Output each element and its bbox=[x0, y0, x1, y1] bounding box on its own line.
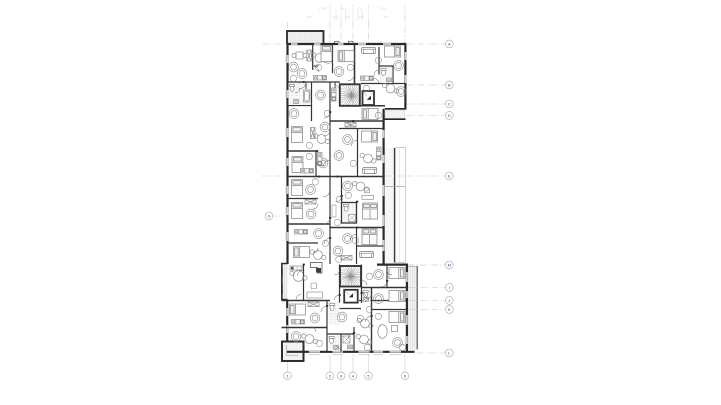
svg-text:1 705: 1 705 bbox=[318, 7, 326, 11]
svg-text:J: J bbox=[448, 298, 450, 303]
svg-text:675: 675 bbox=[356, 7, 361, 11]
svg-text:1 120: 1 120 bbox=[378, 7, 386, 11]
svg-text:G: G bbox=[267, 213, 270, 218]
svg-text:410: 410 bbox=[383, 15, 388, 19]
svg-text:I: I bbox=[449, 285, 450, 290]
svg-text:C: C bbox=[448, 101, 451, 106]
svg-text:960: 960 bbox=[341, 7, 346, 11]
svg-text:D: D bbox=[448, 113, 451, 118]
svg-text:E: E bbox=[448, 173, 451, 178]
svg-text:285: 285 bbox=[358, 15, 363, 19]
svg-text:K: K bbox=[448, 307, 451, 312]
svg-text:A: A bbox=[448, 41, 451, 46]
svg-text:M: M bbox=[448, 262, 451, 267]
svg-text:B: B bbox=[448, 82, 451, 87]
svg-text:375: 375 bbox=[306, 15, 311, 19]
svg-text:210: 210 bbox=[332, 15, 337, 19]
